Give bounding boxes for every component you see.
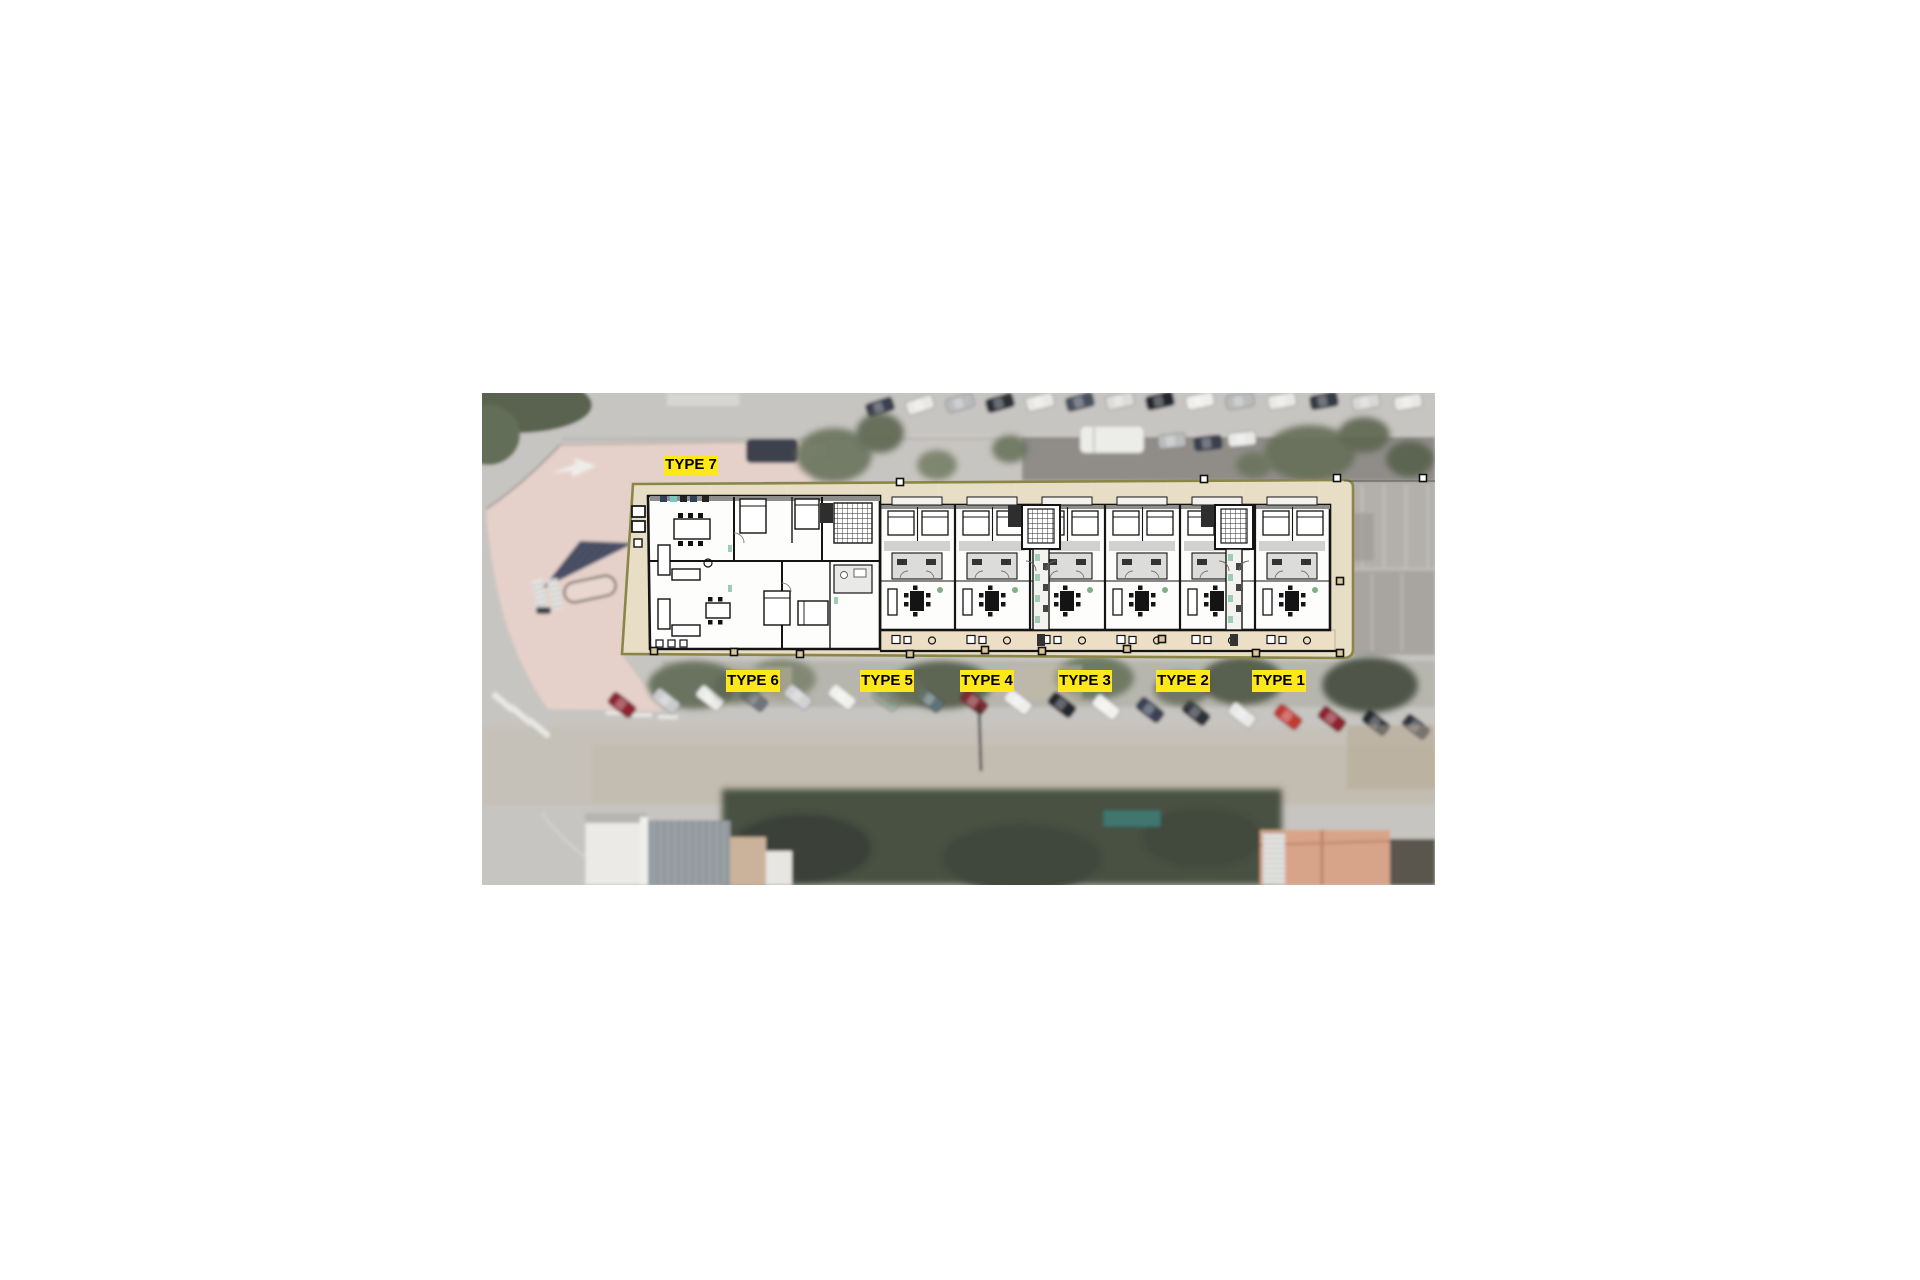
left-block-floor-plan [648, 496, 880, 649]
type-6-label: TYPE 6 [726, 670, 780, 692]
site-plan-overlay [622, 475, 1435, 659]
document-page: TYPE 7 TYPE 6 TYPE 5 TYPE 4 TYPE 3 TYPE … [0, 0, 1920, 1280]
type-3-label: TYPE 3 [1058, 670, 1112, 692]
type-2-label: TYPE 2 [1156, 670, 1210, 692]
type-5-label: TYPE 5 [860, 670, 914, 692]
type-1-label: TYPE 1 [1252, 670, 1306, 692]
parking-lot-right [1344, 481, 1435, 655]
type-4-label: TYPE 4 [960, 670, 1014, 692]
aerial-photo [482, 393, 1435, 885]
aerial-photo-graphic [482, 393, 1435, 885]
type-7-label: TYPE 7 [664, 455, 718, 475]
building-floor-plan [880, 497, 1342, 651]
